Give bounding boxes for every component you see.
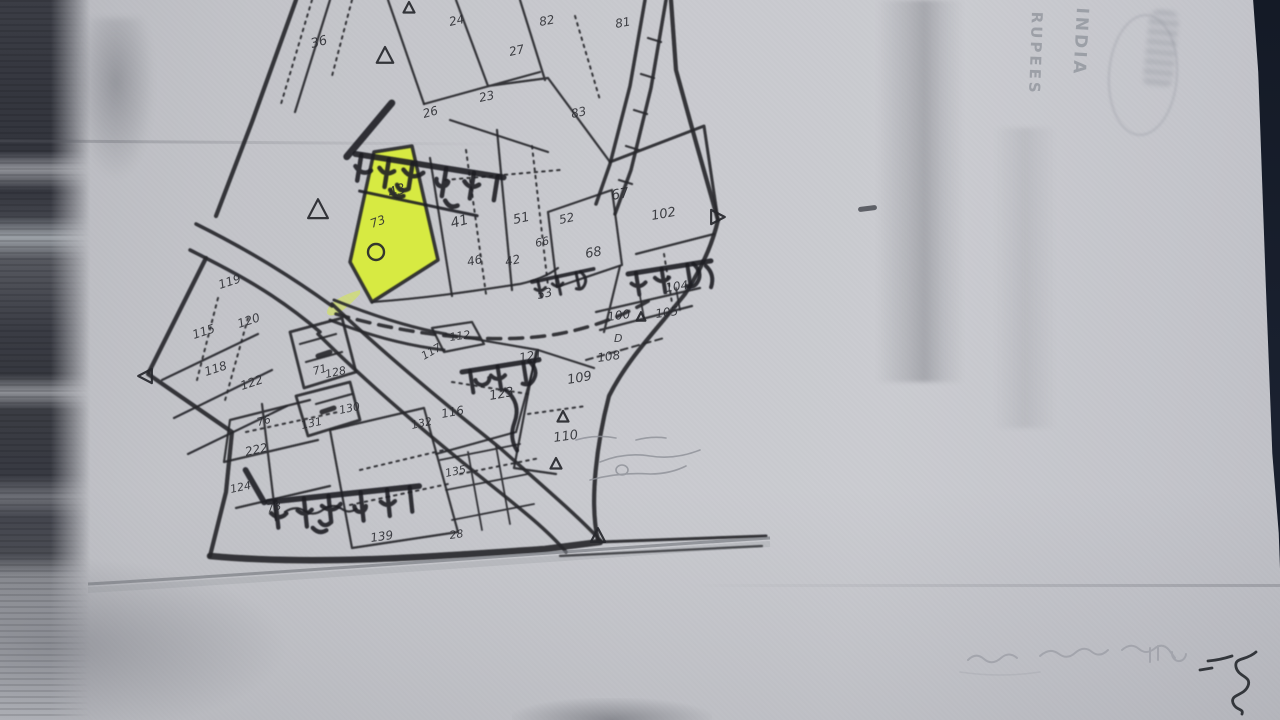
- plot-number: 120: [236, 310, 262, 331]
- plot-number: 222: [244, 440, 269, 458]
- plot-number: 81: [614, 15, 631, 31]
- plot-number: 53: [536, 285, 554, 302]
- plot-number: D: [614, 332, 622, 345]
- plot-number: 26: [421, 103, 440, 121]
- plot-number: 124: [229, 479, 252, 496]
- plot-number: 123: [488, 385, 515, 404]
- signature-mark: [1200, 652, 1256, 714]
- plot-number: 27: [508, 42, 526, 59]
- survey-triangle-marker: [551, 458, 562, 469]
- survey-triangle-marker: [558, 411, 569, 422]
- plot-number: 112: [449, 328, 472, 344]
- survey-triangle-marker: [308, 199, 328, 218]
- plot-number: 67: [610, 185, 630, 204]
- handwriting-bleedthrough: [960, 646, 1186, 675]
- plot-number: 105: [654, 304, 679, 321]
- plot-number: 51: [512, 210, 531, 228]
- plot-number: 109: [566, 369, 593, 388]
- plot-number: 28: [449, 527, 465, 542]
- plot-number: 110: [552, 428, 579, 446]
- plot-number: 115: [191, 321, 217, 341]
- plot-number: 128: [324, 364, 347, 381]
- photographed-document: RUPEES INDIA: [0, 0, 1280, 720]
- plot-number: 23: [478, 88, 496, 105]
- plot-number: 83: [570, 104, 588, 121]
- plot-number: 82: [538, 13, 555, 29]
- plot-number: 52: [558, 210, 576, 227]
- plot-number: 102: [650, 205, 677, 224]
- plot-number: 36: [309, 33, 329, 52]
- cadastral-map-drawing: गोहान दमट दमट दमट: [0, 0, 1280, 720]
- plot-number: 119: [217, 271, 243, 291]
- plot-number: 135: [444, 463, 467, 480]
- copied-sheet-edge: [88, 538, 770, 590]
- plot-number: 121: [518, 347, 543, 365]
- plot-number: 100: [606, 307, 631, 324]
- plot-number: 24: [448, 12, 466, 29]
- plot-number: 78: [266, 499, 282, 515]
- plot-number: 66: [534, 234, 550, 250]
- plot-number: 122: [239, 372, 265, 392]
- survey-triangle-marker: [404, 2, 415, 13]
- plot-number: 68: [584, 244, 603, 262]
- survey-triangle-marker: [377, 47, 394, 63]
- plot-number: 42: [504, 252, 522, 269]
- plot-number: 108: [596, 348, 621, 365]
- plot-number: 118: [203, 358, 229, 379]
